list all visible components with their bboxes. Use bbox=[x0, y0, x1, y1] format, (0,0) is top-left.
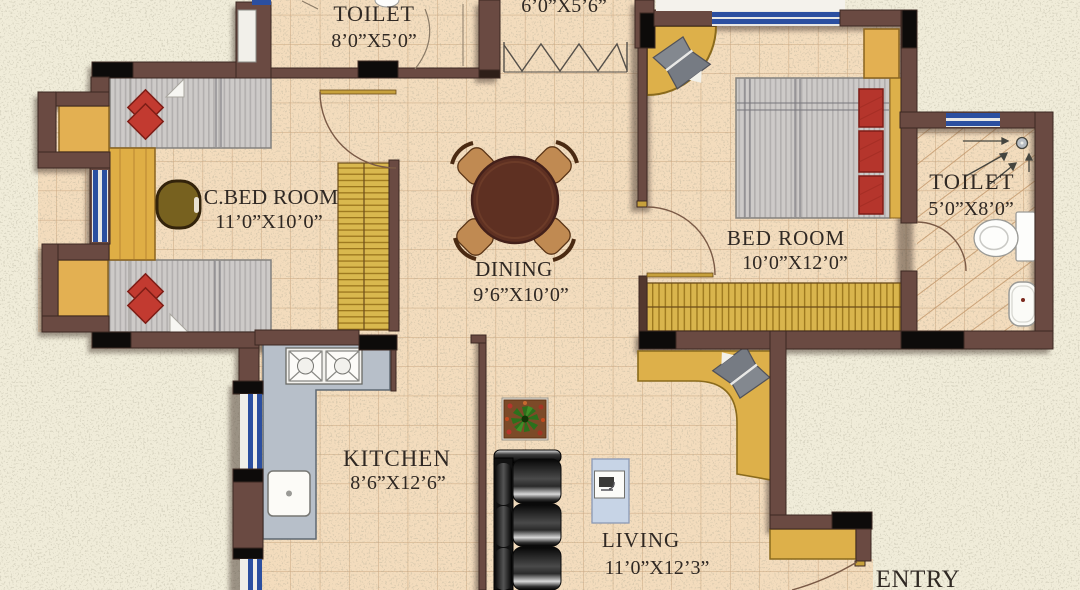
svg-text:6’0”X5’6”: 6’0”X5’6” bbox=[521, 0, 607, 17]
svg-text:DINING: DINING bbox=[475, 257, 553, 281]
svg-text:10’0”X12’0”: 10’0”X12’0” bbox=[742, 252, 848, 274]
svg-text:8’0”X5’0”: 8’0”X5’0” bbox=[331, 30, 417, 52]
svg-text:KITCHEN: KITCHEN bbox=[343, 446, 451, 471]
svg-text:TOILET: TOILET bbox=[929, 169, 1015, 194]
svg-text:C.BED ROOM: C.BED ROOM bbox=[204, 185, 339, 209]
svg-text:5’0”X8’0”: 5’0”X8’0” bbox=[928, 198, 1014, 220]
svg-text:LIVING: LIVING bbox=[602, 528, 680, 552]
svg-text:ENTRY: ENTRY bbox=[876, 566, 960, 590]
svg-text:8’6”X12’6”: 8’6”X12’6” bbox=[350, 472, 446, 494]
svg-text:9’6”X10’0”: 9’6”X10’0” bbox=[473, 284, 569, 306]
svg-text:TOILET: TOILET bbox=[333, 1, 414, 26]
svg-text:11’0”X12’3”: 11’0”X12’3” bbox=[605, 557, 710, 579]
svg-text:BED ROOM: BED ROOM bbox=[727, 226, 845, 250]
svg-text:11’0”X10’0”: 11’0”X10’0” bbox=[215, 211, 322, 233]
